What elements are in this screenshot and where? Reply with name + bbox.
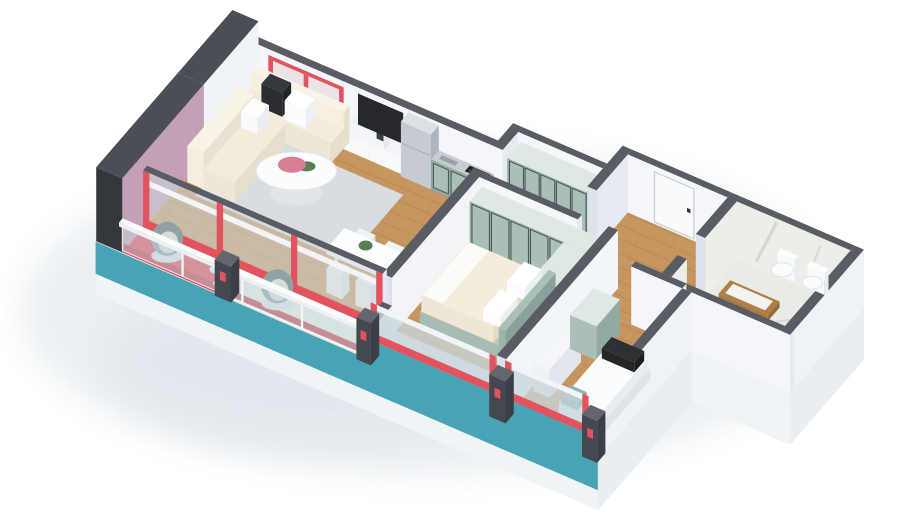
floor-plan-3d-render — [0, 0, 900, 515]
facade-pier-2 — [489, 365, 514, 424]
front-mullion-1 — [143, 170, 149, 231]
table-plant — [359, 241, 373, 251]
facade-pier-3 — [582, 405, 605, 463]
balustrade-post-1 — [181, 251, 183, 277]
balustrade-post-3 — [301, 302, 303, 328]
bidet-bowl — [802, 276, 822, 289]
toilet-bowl — [771, 263, 793, 277]
floor-plan-stage — [0, 0, 900, 515]
facade-pier-1 — [356, 308, 379, 366]
balcony-pillar — [215, 250, 240, 303]
balustrade-post-2 — [241, 277, 243, 303]
flower-bouquet — [278, 157, 306, 173]
